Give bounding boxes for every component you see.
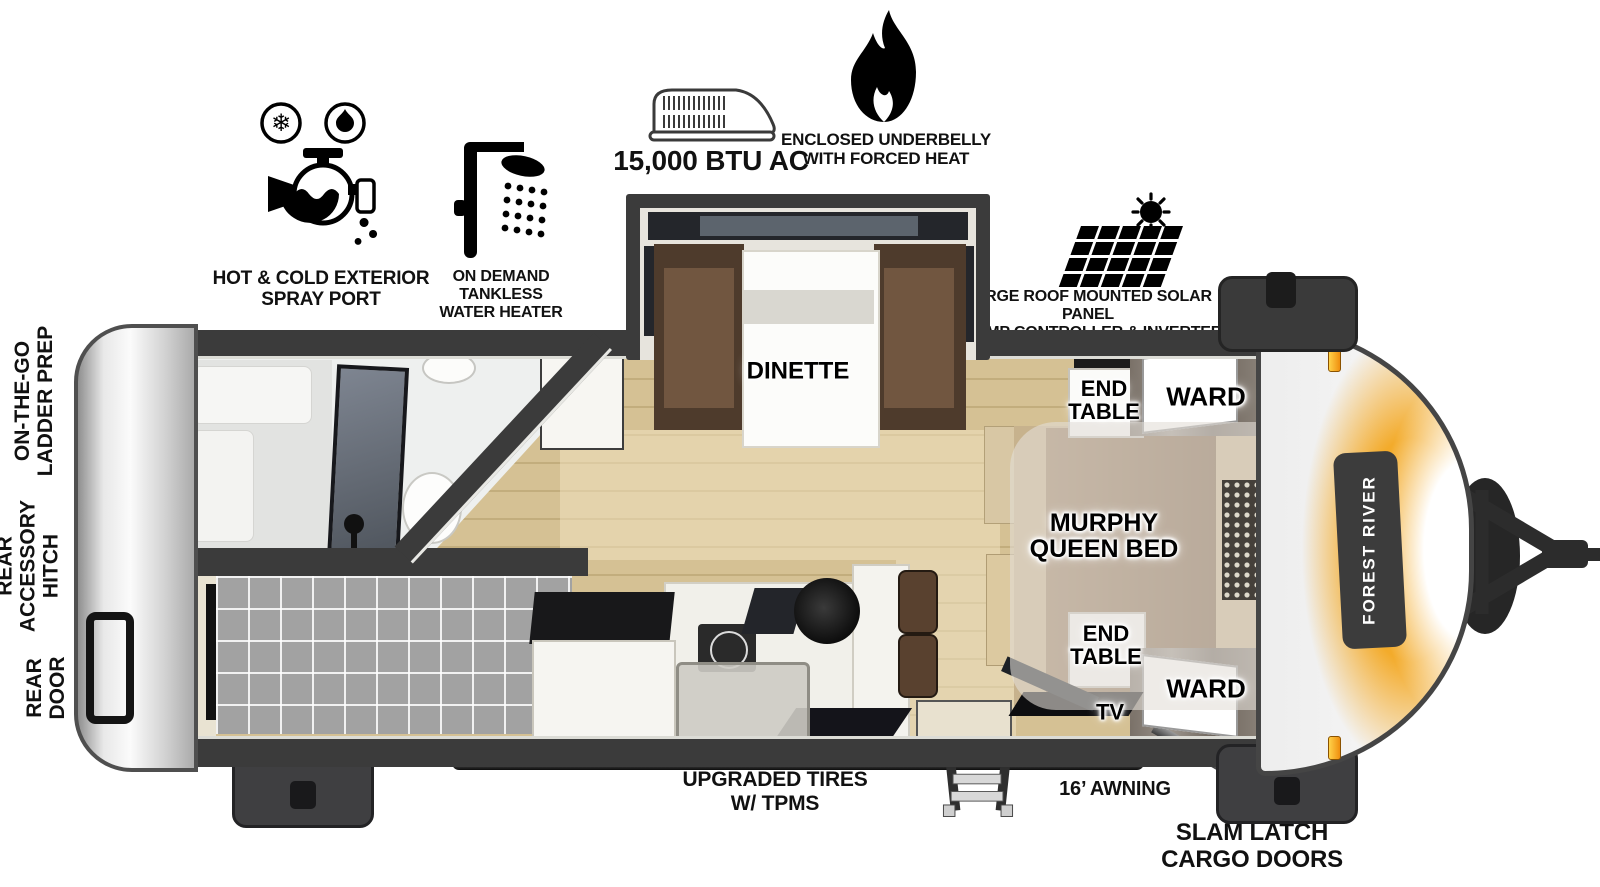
ac-unit-icon	[642, 82, 780, 146]
dinette-label: DINETTE	[747, 360, 850, 385]
murphy-queen-bed-label: MURPHY QUEEN BED	[1030, 510, 1179, 562]
spray-port-label: HOT & COLD EXTERIOR SPRAY PORT	[196, 268, 446, 311]
rear-door-handle	[86, 612, 134, 724]
svg-text:❄: ❄	[271, 110, 291, 137]
cargo-latch	[290, 781, 316, 809]
rear-door-label: REAR DOOR	[23, 657, 69, 720]
bath-cabinet	[192, 430, 254, 542]
tv-label: TV	[1096, 702, 1124, 725]
end-table-bottom-label: END TABLE	[1070, 623, 1142, 669]
water-heater-label: ON DEMAND TANKLESS WATER HEATER	[425, 268, 577, 322]
slam-latch-label: SLAM LATCH CARGO DOORS	[1122, 820, 1382, 874]
underbelly-heat-label: ENCLOSED UNDERBELLY WITH FORCED HEAT	[766, 130, 1006, 168]
dinette-table	[742, 250, 880, 448]
marker-light	[1328, 736, 1341, 760]
bunk-mattress	[216, 576, 572, 734]
dinette-bench-cushion	[664, 268, 734, 408]
forced-heat-flame-icon	[842, 8, 934, 130]
ladder-prep-label: ON-THE-GO LADDER PREP	[11, 326, 57, 477]
brand-label: FOREST RIVER	[1361, 475, 1380, 625]
end-table-top-label: END TABLE	[1068, 378, 1140, 424]
bar-stool	[898, 634, 938, 698]
awning-label: 16’ AWNING	[1040, 778, 1190, 800]
bottom-wall	[158, 736, 1292, 767]
propane-cover-knob	[1266, 272, 1296, 308]
upgraded-tires-label: UPGRADED TIRES W/ TPMS	[650, 768, 900, 815]
rear-accessory-hitch-label: REAR ACCESSORY HITCH	[0, 500, 63, 632]
refrigerator	[532, 640, 676, 746]
tankless-water-heater-icon	[452, 140, 552, 262]
bunk-side-rail	[206, 584, 216, 720]
refrigerator-top	[529, 592, 674, 644]
dinette-bench-cushion	[884, 268, 954, 408]
hot-cold-spray-port-icon: ❄	[258, 100, 380, 252]
dinette-table-shadow	[744, 290, 874, 324]
ward-top-label: WARD	[1166, 383, 1245, 410]
bath-bunk-dividing-wall	[158, 548, 588, 576]
bar-stool	[898, 570, 938, 634]
walkway-light-patch	[560, 430, 1000, 560]
shower-glass-door	[327, 364, 409, 563]
solar-panel-icon	[1035, 190, 1183, 292]
rv-floorplan-diagram: ❄ HOT & COLD EXTERIOR SPRAY PORT ON DEMA…	[0, 0, 1600, 887]
kitchen-sink	[794, 578, 860, 644]
cargo-latch	[1274, 777, 1300, 805]
top-wall-rear-segment	[158, 330, 630, 359]
ward-bottom-label: WARD	[1166, 675, 1245, 702]
bath-vanity	[192, 366, 312, 424]
slideout-skylight	[700, 216, 918, 236]
